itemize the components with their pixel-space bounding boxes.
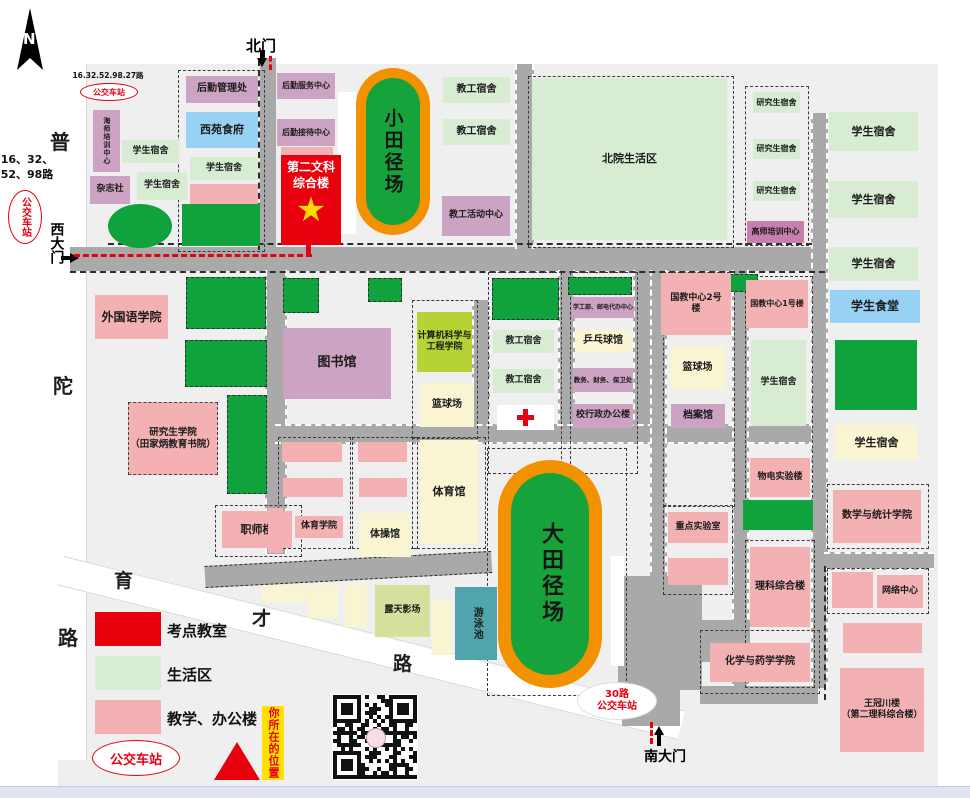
- qr-module: [401, 735, 405, 739]
- small-track-field: 小田径场: [356, 68, 430, 235]
- map-block: [190, 184, 258, 204]
- building-student-dormitory: 学生宿舍: [829, 112, 918, 151]
- qr-module: [393, 739, 397, 743]
- qr-module: [333, 771, 337, 775]
- building-logistics-service-center: 后勤服务中心: [277, 73, 335, 99]
- compass-letter: N: [23, 30, 36, 48]
- building-network-center: 网络中心: [877, 575, 923, 608]
- bus-stop-label: 公交车站: [597, 701, 637, 714]
- qr-module: [357, 707, 361, 711]
- qr-module: [345, 723, 349, 727]
- qr-module: [413, 695, 417, 699]
- qr-module: [349, 727, 353, 731]
- qr-module: [349, 759, 353, 763]
- qr-module: [345, 731, 349, 735]
- qr-module: [401, 747, 405, 751]
- qr-module: [333, 731, 337, 735]
- legend-item-label: 生活区: [167, 656, 212, 692]
- qr-module: [405, 695, 409, 699]
- qr-module: [365, 767, 369, 771]
- building-student-dormitory: 学生宿舍: [190, 157, 258, 180]
- qr-module: [333, 739, 337, 743]
- qr-module: [373, 707, 377, 711]
- bus-stop-line: 30路: [605, 689, 629, 702]
- bus-stop-oval-top-left: 公交车站: [80, 83, 138, 101]
- qr-module: [405, 763, 409, 767]
- qr-module: [397, 695, 401, 699]
- school-seal-icon: [366, 728, 386, 748]
- qr-module: [393, 751, 397, 755]
- qr-module: [389, 699, 393, 703]
- qr-module: [333, 723, 337, 727]
- bus-stop-oval-south: 30路 公交车站: [577, 682, 657, 720]
- bus-lines-top-left: 16.32.52.98.27路: [72, 70, 144, 81]
- qr-module: [409, 731, 413, 735]
- building-computer-science-school: 计算机科学与 工程学院: [417, 312, 472, 372]
- building-north-campus-living-area: 北院生活区: [532, 78, 727, 240]
- map-block: [268, 508, 283, 553]
- qr-module: [333, 767, 337, 771]
- qr-module: [377, 715, 381, 719]
- qr-module: [409, 747, 413, 751]
- qr-module: [341, 707, 345, 711]
- building-wangguanchuan-building: 王冠川楼 （第二理科综合楼）: [840, 668, 924, 752]
- qr-module: [357, 775, 361, 779]
- qr-module: [385, 747, 389, 751]
- green-area: [186, 277, 266, 329]
- qr-module: [389, 703, 393, 707]
- qr-module: [357, 759, 361, 763]
- white-strip: [611, 556, 624, 666]
- road-name-yucai-3: 路: [393, 649, 412, 676]
- qr-module: [393, 767, 397, 771]
- qr-module: [389, 763, 393, 767]
- qr-module: [413, 751, 417, 755]
- green-area: [492, 278, 559, 320]
- qr-module: [365, 695, 369, 699]
- qr-module: [389, 743, 393, 747]
- qr-module: [385, 727, 389, 731]
- qr-module: [385, 715, 389, 719]
- qr-module: [401, 759, 405, 763]
- qr-module: [409, 719, 413, 723]
- building-staff-dormitory: 教工宿舍: [493, 330, 554, 353]
- qr-module: [345, 767, 349, 771]
- qr-module: [397, 739, 401, 743]
- qr-module: [337, 727, 341, 731]
- route-arrow-icon: [306, 238, 311, 256]
- qr-module: [361, 731, 365, 735]
- qr-module: [349, 743, 353, 747]
- qr-module: [405, 727, 409, 731]
- qr-module: [405, 719, 409, 723]
- qr-module: [369, 755, 373, 759]
- qr-module: [361, 763, 365, 767]
- qr-module: [341, 767, 345, 771]
- building-graduate-school: 研究生学院 （田家炳教育书院）: [128, 402, 218, 475]
- south-gate-label: 南大门: [644, 750, 686, 765]
- building-student-dormitory: 学生宿舍: [751, 340, 806, 426]
- road-name-putuo-1: 普: [50, 126, 70, 155]
- large-track-field: 大田径场: [498, 460, 602, 688]
- qr-module: [393, 743, 397, 747]
- qr-module: [357, 695, 361, 699]
- qr-module: [373, 751, 377, 755]
- building-graduate-dormitory: 研究生宿舍: [753, 92, 800, 113]
- qr-module: [349, 711, 353, 715]
- road-dash-line: [824, 566, 826, 700]
- qr-module: [393, 723, 397, 727]
- qr-module: [409, 695, 413, 699]
- qr-module: [345, 695, 349, 699]
- building-intl-edu-center-1: 国教中心1号楼: [746, 280, 808, 328]
- map-block: [358, 442, 407, 462]
- south-gate-arrow-icon: [657, 734, 661, 746]
- qr-module: [345, 707, 349, 711]
- qr-module: [393, 719, 397, 723]
- qr-module: [389, 775, 393, 779]
- qr-module: [341, 747, 345, 751]
- qr-module: [381, 771, 385, 775]
- qr-module: [413, 775, 417, 779]
- qr-module: [333, 715, 337, 719]
- qr-module: [405, 767, 409, 771]
- qr-module: [405, 703, 409, 707]
- qr-module: [405, 775, 409, 779]
- qr-module: [389, 707, 393, 711]
- qr-module: [393, 759, 397, 763]
- green-area: [182, 204, 260, 246]
- qr-module: [381, 719, 385, 723]
- qr-module: [365, 747, 369, 751]
- qr-module: [357, 719, 361, 723]
- qr-module: [389, 723, 393, 727]
- qr-module: [397, 711, 401, 715]
- road-name-putuo-3: 路: [58, 622, 78, 651]
- qr-module: [397, 775, 401, 779]
- qr-module: [361, 771, 365, 775]
- qr-module: [393, 771, 397, 775]
- building-magazine-office: 杂志社: [90, 176, 130, 204]
- building-academic-finance-security-office: 教务、财务、保卫处: [573, 368, 633, 392]
- building-library: 图书馆: [283, 328, 391, 399]
- qr-module: [357, 727, 361, 731]
- building-staff-dormitory: 教工宿舍: [443, 119, 510, 145]
- qr-module: [373, 719, 377, 723]
- large-track-infield: 大田径场: [511, 473, 589, 675]
- building-foreign-languages-school: 外国语学院: [95, 295, 168, 339]
- building-chemistry-pharmacy-school: 化学与药学学院: [710, 643, 810, 682]
- qr-module: [389, 755, 393, 759]
- building-pe-school: 体育学院: [295, 516, 343, 538]
- bus-stop-label: 公交车站: [93, 87, 125, 98]
- qr-module: [341, 763, 345, 767]
- qr-module: [409, 767, 413, 771]
- qr-module: [333, 703, 337, 707]
- qr-module: [373, 703, 377, 707]
- qr-module: [349, 739, 353, 743]
- qr-module: [409, 739, 413, 743]
- qr-module: [405, 723, 409, 727]
- building-basketball-court: 篮球场: [420, 383, 474, 427]
- qr-module: [385, 703, 389, 707]
- legend-bus-stop-label: 公交车站: [110, 749, 162, 768]
- building-haishi-training-center: 海师培训中心: [93, 110, 120, 172]
- qr-module: [381, 775, 385, 779]
- qr-module: [377, 767, 381, 771]
- legend-item-label: 教学、办公楼: [167, 700, 257, 736]
- building-xiyuan-dining-hall: 西苑食府: [186, 112, 258, 148]
- qr-module: [413, 735, 417, 739]
- building-gaoshi-training-center: 高师培训中心: [747, 221, 804, 243]
- bus-lines-west-line2: 52、98路: [0, 168, 54, 183]
- qr-module: [333, 755, 337, 759]
- legend-bus-stop-oval: 公交车站: [92, 740, 180, 776]
- qr-module: [369, 759, 373, 763]
- building-graduate-dormitory: 研究生宿舍: [753, 139, 800, 159]
- qr-module: [397, 751, 401, 755]
- small-track-infield: 小田径场: [366, 78, 420, 225]
- qr-module: [361, 723, 365, 727]
- qr-module: [365, 711, 369, 715]
- qr-module: [413, 731, 417, 735]
- qr-module: [349, 747, 353, 751]
- qr-module: [333, 699, 337, 703]
- building-student-dormitory: 学生宿舍: [137, 172, 187, 200]
- qr-module: [369, 711, 373, 715]
- qr-module: [373, 771, 377, 775]
- building-table-tennis-gym: 乒乓球馆: [575, 330, 631, 352]
- bottom-strip: [0, 786, 970, 798]
- qr-module: [397, 743, 401, 747]
- qr-module: [357, 699, 361, 703]
- building-math-statistics-school: 数学与统计学院: [833, 490, 921, 543]
- building-logistics-reception-center: 后勤接待中心: [277, 119, 335, 146]
- qr-module: [357, 703, 361, 707]
- qr-module: [389, 711, 393, 715]
- road-name-yucai-2: 才: [252, 604, 271, 631]
- qr-module: [409, 775, 413, 779]
- qr-module: [405, 707, 409, 711]
- bus-stop-oval-west: 公交车站: [8, 190, 42, 244]
- qr-module: [401, 707, 405, 711]
- qr-module: [405, 735, 409, 739]
- qr-module: [413, 699, 417, 703]
- qr-module: [393, 747, 397, 751]
- qr-module: [389, 715, 393, 719]
- qr-module: [345, 719, 349, 723]
- qr-module: [341, 775, 345, 779]
- building-archives: 档案馆: [671, 404, 725, 428]
- qr-module: [365, 755, 369, 759]
- building-graduate-dormitory: 研究生宿舍: [753, 181, 800, 201]
- building-student-dormitory: 学生宿舍: [122, 140, 179, 163]
- qr-module: [341, 719, 345, 723]
- qr-module: [405, 711, 409, 715]
- qr-module: [349, 775, 353, 779]
- qr-module: [333, 759, 337, 763]
- building-swimming-pool: 游泳池: [455, 587, 497, 660]
- road-name-yucai-1: 育: [114, 566, 133, 593]
- qr-module: [397, 707, 401, 711]
- qr-module: [357, 711, 361, 715]
- green-area: [108, 204, 172, 248]
- qr-module: [389, 767, 393, 771]
- green-area: [568, 277, 632, 295]
- green-area: [368, 278, 402, 302]
- qr-module: [369, 707, 373, 711]
- qr-module: [365, 703, 369, 707]
- map-block: [843, 623, 922, 653]
- legend-swatch-life: [95, 656, 161, 690]
- qr-module: [345, 763, 349, 767]
- qr-module: [349, 735, 353, 739]
- qr-module: [349, 731, 353, 735]
- qr-module: [353, 695, 357, 699]
- qr-module: [333, 751, 337, 755]
- qr-module: [337, 735, 341, 739]
- you-are-here-triangle: [214, 742, 260, 780]
- south-gate-route-dash: [650, 722, 653, 744]
- qr-module: [397, 703, 401, 707]
- qr-module: [345, 775, 349, 779]
- red-cross-icon: [523, 409, 528, 426]
- building-staff-dormitory: 教工宿舍: [443, 77, 510, 103]
- qr-module: [337, 739, 341, 743]
- qr-module: [361, 767, 365, 771]
- map-block: [359, 478, 407, 497]
- qr-module: [333, 711, 337, 715]
- qr-module: [385, 743, 389, 747]
- building-key-laboratory: 重点实验室: [668, 512, 728, 543]
- qr-module: [349, 767, 353, 771]
- qr-module: [369, 775, 373, 779]
- qr-module: [337, 695, 341, 699]
- qr-module: [413, 719, 417, 723]
- qr-module: [341, 731, 345, 735]
- qr-module: [401, 763, 405, 767]
- qr-module: [337, 743, 341, 747]
- map-block: [668, 558, 728, 585]
- qr-module: [389, 695, 393, 699]
- qr-module: [393, 775, 397, 779]
- qr-module: [377, 723, 381, 727]
- qr-code: [332, 694, 418, 780]
- building-student-canteen: 学生食堂: [830, 290, 920, 323]
- qr-module: [373, 755, 377, 759]
- red-cross-icon: [517, 409, 534, 426]
- qr-module: [361, 775, 365, 779]
- green-area: [743, 500, 813, 530]
- main-building-label: 第二文科 综合楼: [287, 160, 335, 191]
- route-dashed-line: [74, 254, 312, 257]
- qr-module: [333, 695, 337, 699]
- qr-module: [341, 695, 345, 699]
- qr-module: [357, 771, 361, 775]
- green-area: [835, 340, 917, 410]
- qr-module: [353, 731, 357, 735]
- qr-module: [337, 751, 341, 755]
- map-block: [308, 585, 338, 618]
- building-staff-dormitory: 教工宿舍: [493, 369, 554, 393]
- qr-module: [401, 711, 405, 715]
- qr-module: [385, 775, 389, 779]
- map-block: [283, 478, 343, 497]
- campus-map: N 16.32.52.98.27路 公交车站 16、32、 52、98路 公交车…: [0, 0, 970, 798]
- bus-lines-west-line1: 16、32、: [0, 153, 54, 168]
- qr-module: [357, 755, 361, 759]
- legend-item-label: 考点教室: [167, 612, 227, 648]
- qr-module: [401, 695, 405, 699]
- qr-module: [349, 723, 353, 727]
- qr-module: [345, 759, 349, 763]
- qr-module: [405, 731, 409, 735]
- qr-module: [381, 695, 385, 699]
- qr-module: [349, 695, 353, 699]
- qr-module: [377, 707, 381, 711]
- qr-module: [333, 763, 337, 767]
- qr-module: [357, 735, 361, 739]
- qr-module: [345, 751, 349, 755]
- building-science-building: 理科综合楼: [750, 547, 810, 627]
- qr-module: [341, 751, 345, 755]
- qr-module: [365, 775, 369, 779]
- qr-module: [353, 739, 357, 743]
- building-student-dormitory: 学生宿舍: [829, 181, 918, 218]
- map-block: [282, 442, 342, 462]
- qr-module: [397, 763, 401, 767]
- qr-module: [341, 743, 345, 747]
- bus-lines-west: 16、32、 52、98路: [0, 153, 54, 183]
- qr-module: [353, 751, 357, 755]
- qr-module: [345, 703, 349, 707]
- qr-module: [401, 703, 405, 707]
- qr-module: [353, 719, 357, 723]
- qr-module: [337, 731, 341, 735]
- qr-module: [369, 751, 373, 755]
- qr-module: [341, 727, 345, 731]
- qr-module: [401, 775, 405, 779]
- building-gymnastics-hall: 体操馆: [359, 513, 411, 557]
- qr-module: [397, 719, 401, 723]
- qr-module: [337, 719, 341, 723]
- qr-module: [393, 755, 397, 759]
- building-gymnasium: 体育馆: [420, 440, 478, 544]
- qr-module: [413, 759, 417, 763]
- qr-module: [409, 723, 413, 727]
- large-track-label: 大田径场: [534, 522, 566, 626]
- building-student-dormitory: 学生宿舍: [835, 425, 918, 460]
- qr-module: [413, 703, 417, 707]
- qr-module: [345, 743, 349, 747]
- building-intl-edu-center-2: 国教中心2号 楼: [661, 273, 731, 335]
- qr-module: [369, 715, 373, 719]
- qr-module: [341, 703, 345, 707]
- qr-module: [341, 711, 345, 715]
- qr-module: [401, 731, 405, 735]
- north-gate-arrow-icon: [257, 58, 267, 67]
- qr-module: [385, 771, 389, 775]
- map-block: [262, 585, 307, 602]
- map-block: [832, 572, 873, 608]
- qr-module: [365, 719, 369, 723]
- bus-stop-label: 公交车站: [18, 197, 33, 237]
- qr-module: [381, 699, 385, 703]
- qr-module: [341, 759, 345, 763]
- qr-module: [393, 695, 397, 699]
- qr-module: [333, 719, 337, 723]
- qr-module: [349, 719, 353, 723]
